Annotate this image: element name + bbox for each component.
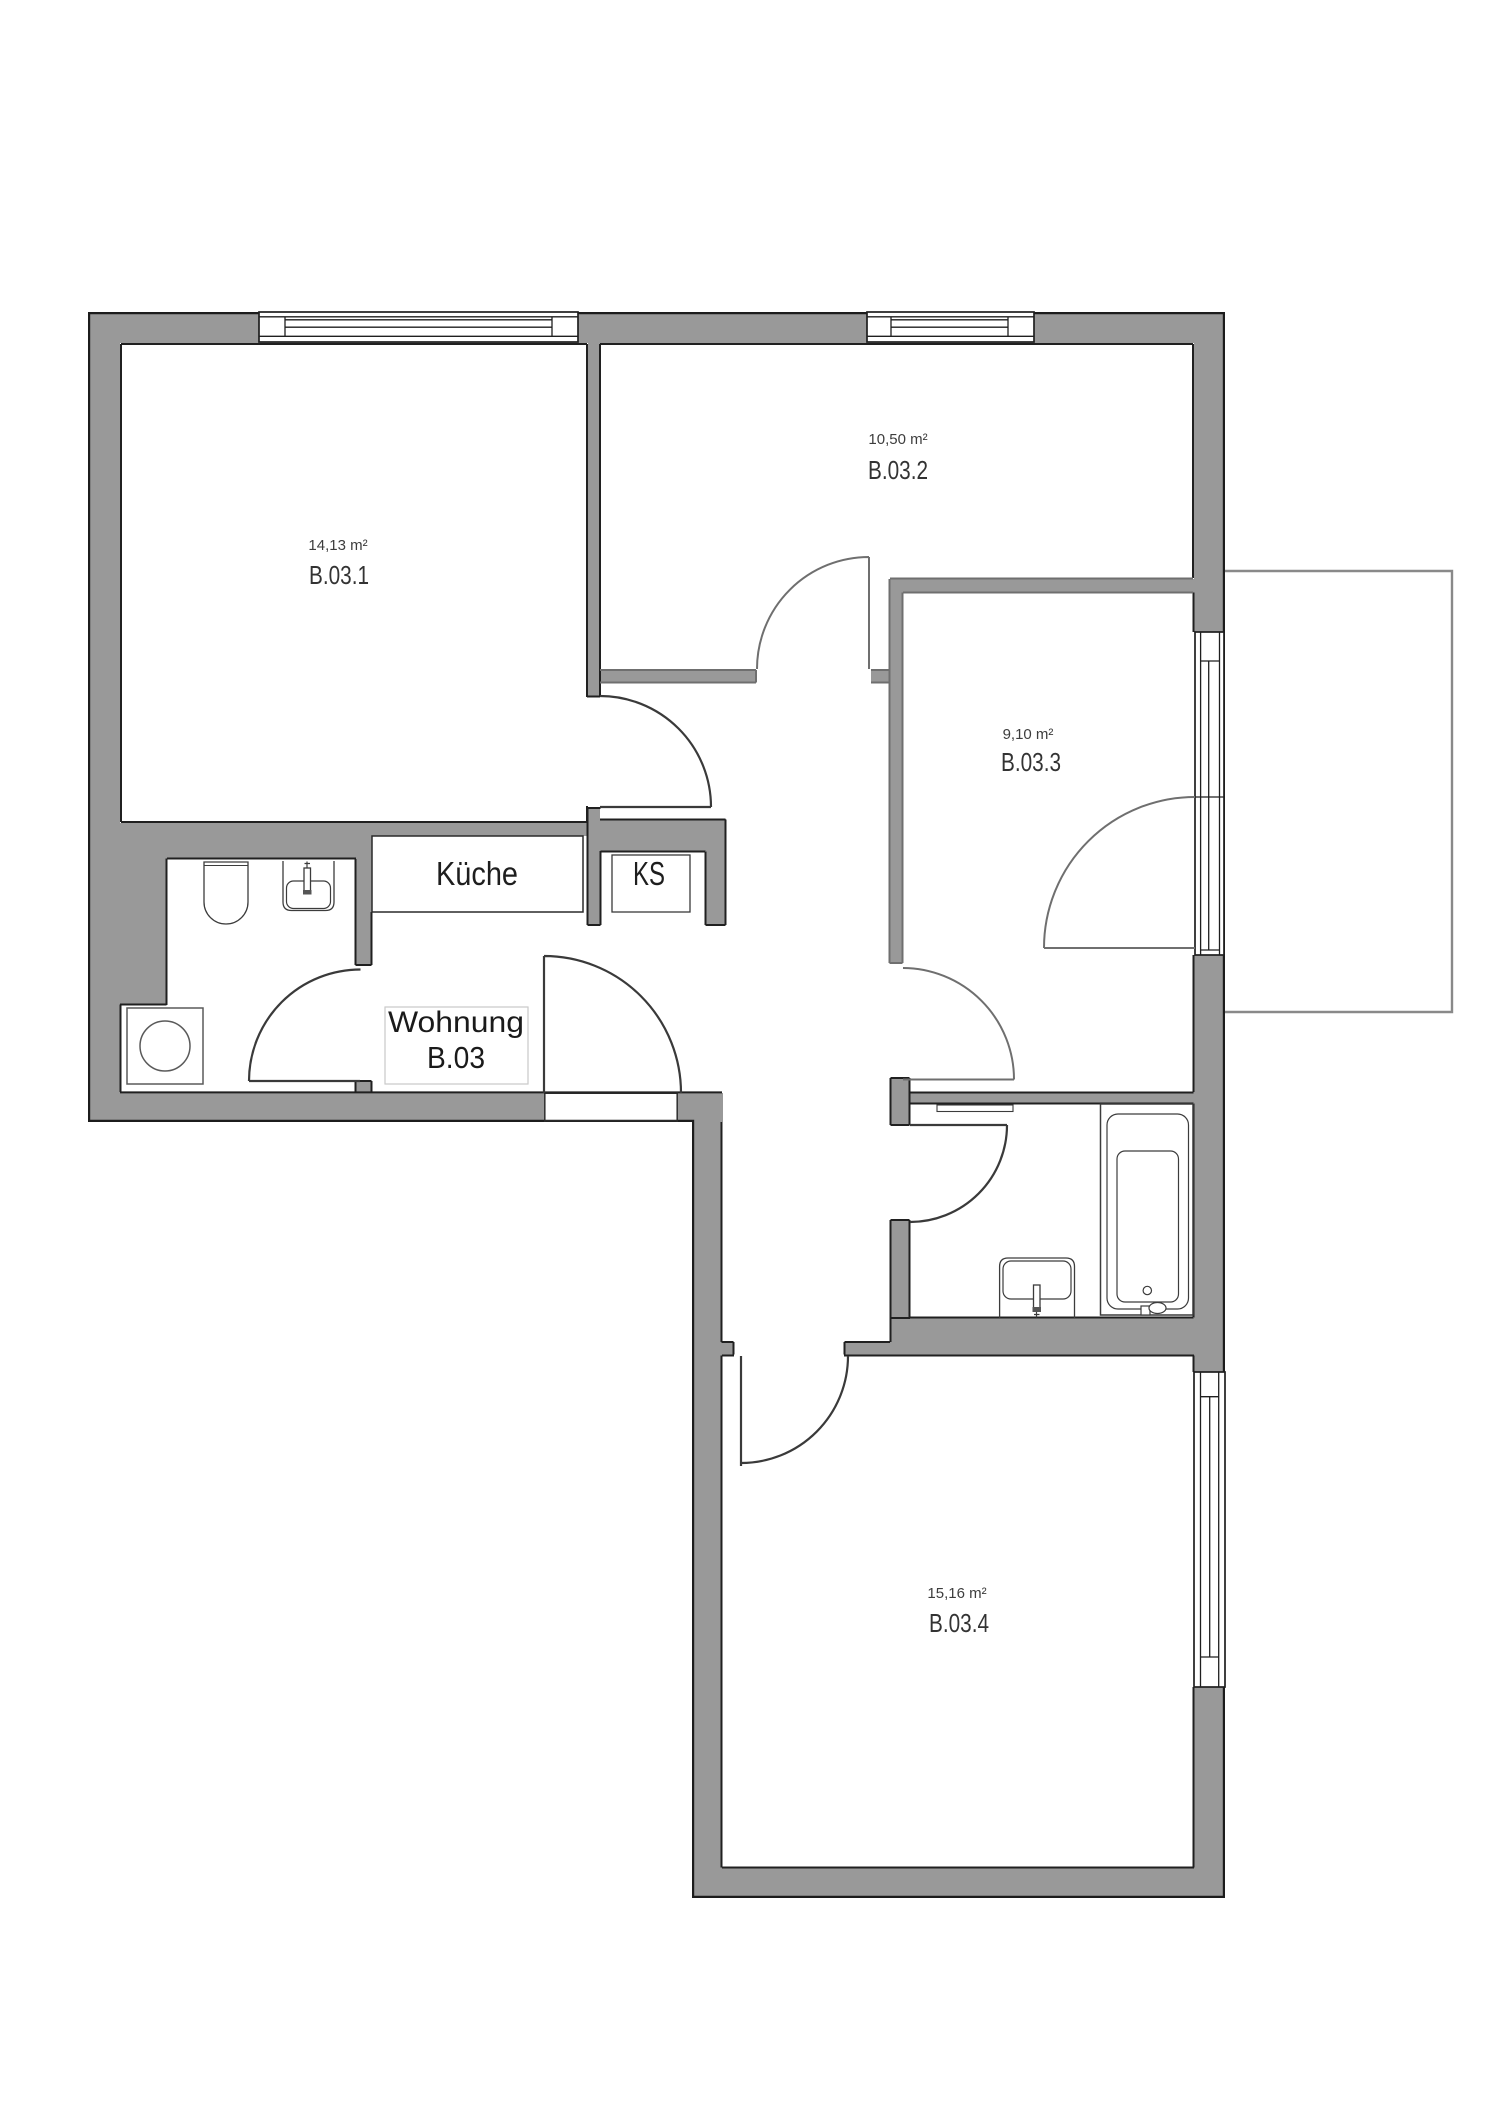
svg-text:15,16 m²: 15,16 m² — [927, 1585, 986, 1602]
svg-text:10,50 m²: 10,50 m² — [868, 431, 927, 448]
svg-text:KS: KS — [633, 855, 665, 892]
svg-text:B.03: B.03 — [427, 1040, 485, 1075]
svg-text:14,13 m²: 14,13 m² — [308, 537, 367, 554]
svg-text:B.03.4: B.03.4 — [929, 1608, 989, 1638]
svg-text:Küche: Küche — [436, 855, 518, 892]
svg-text:B.03.3: B.03.3 — [1001, 747, 1061, 777]
svg-text:B.03.1: B.03.1 — [309, 560, 369, 590]
svg-text:9,10 m²: 9,10 m² — [1003, 726, 1054, 743]
svg-text:Wohnung: Wohnung — [388, 1006, 524, 1039]
svg-text:B.03.2: B.03.2 — [868, 455, 928, 485]
